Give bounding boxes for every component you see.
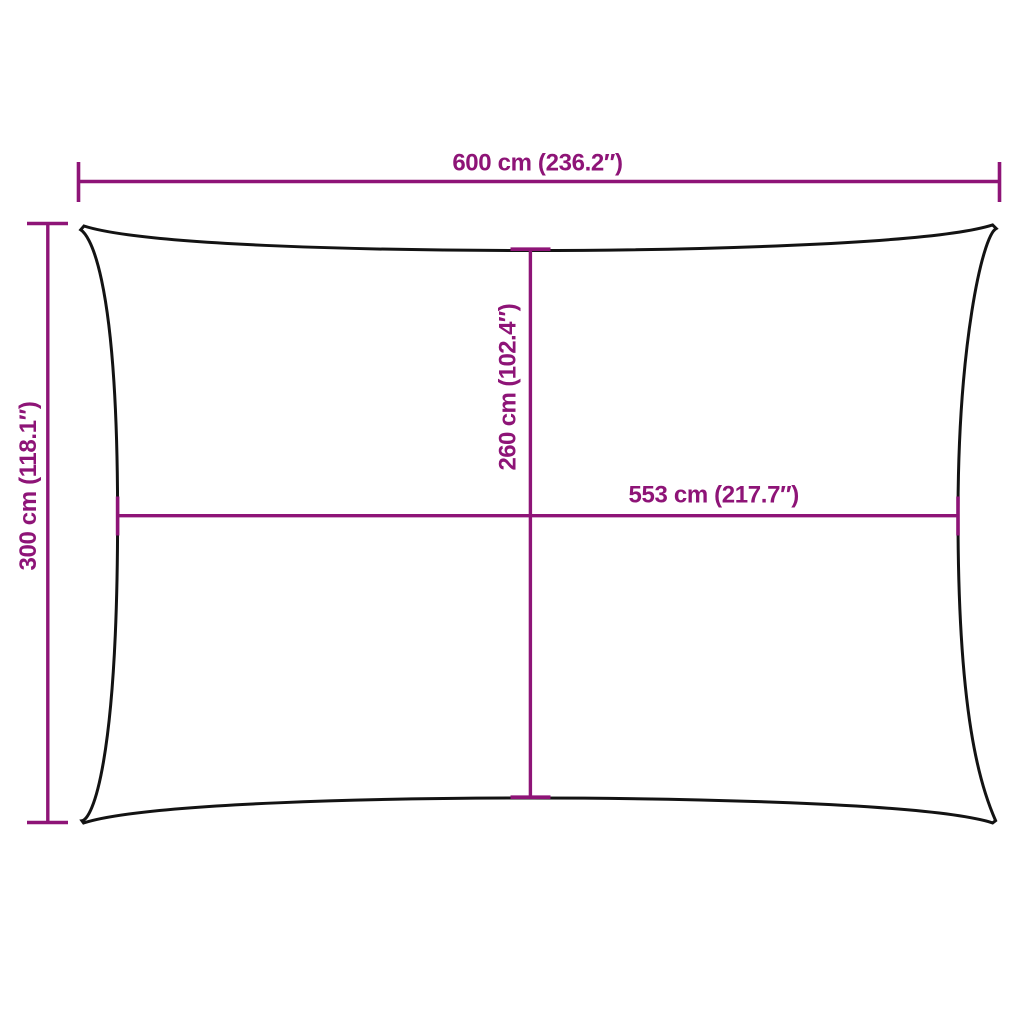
svg-text:553 cm (217.7″): 553 cm (217.7″) (629, 481, 799, 508)
svg-text:600 cm (236.2″): 600 cm (236.2″) (452, 149, 622, 176)
svg-text:260 cm (102.4″): 260 cm (102.4″) (494, 304, 521, 471)
svg-text:300 cm (118.1″): 300 cm (118.1″) (15, 401, 42, 570)
